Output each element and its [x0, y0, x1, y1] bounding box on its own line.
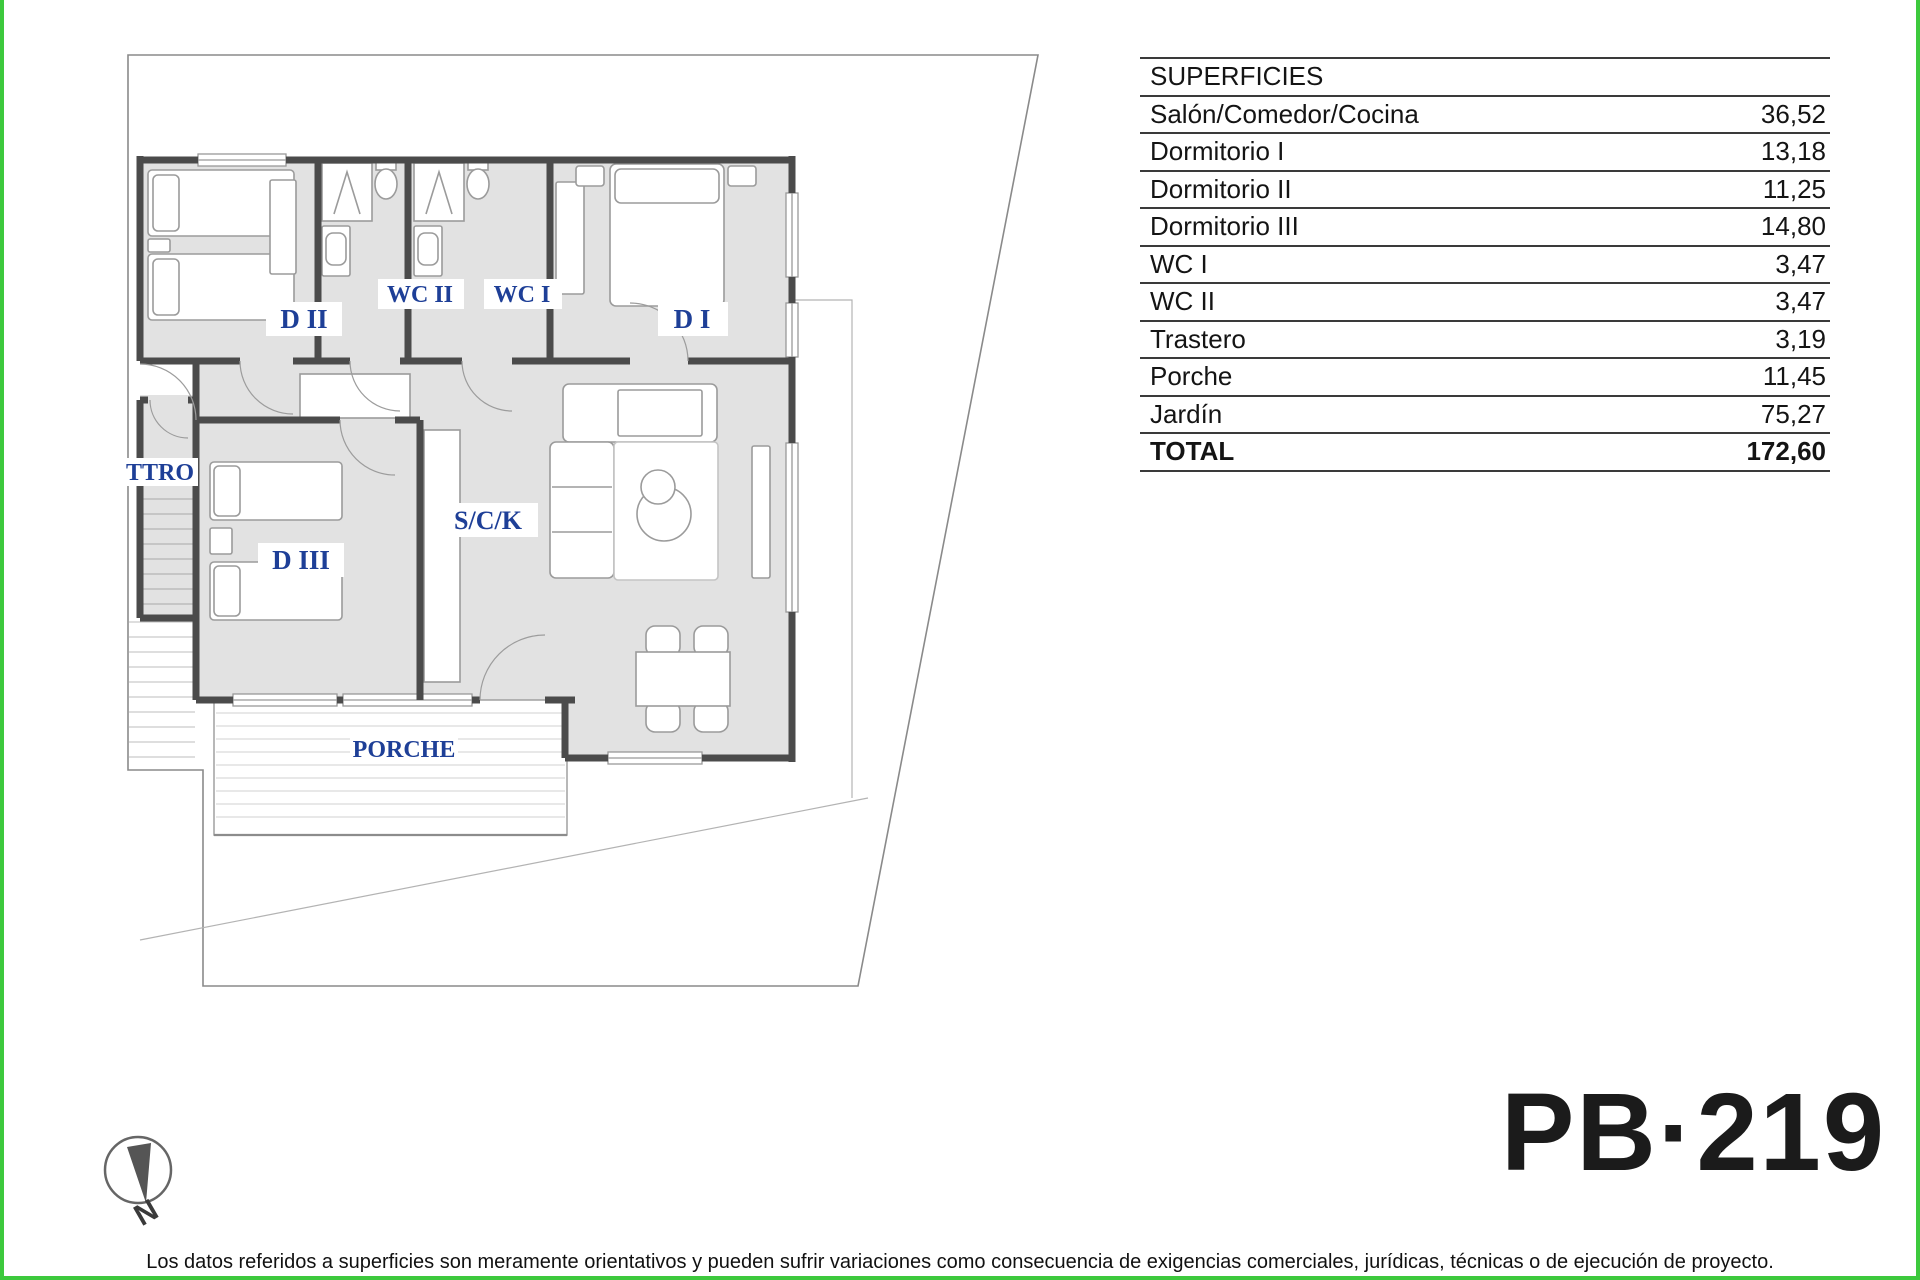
- armchair: [563, 384, 717, 442]
- surface-row: Jardín 75,27: [1140, 397, 1830, 435]
- surface-total-row: TOTAL 172,60: [1140, 434, 1830, 472]
- surface-value: 13,18: [1761, 136, 1826, 167]
- surface-value: 3,47: [1775, 249, 1826, 280]
- room-label-sck: S/C/K: [454, 506, 523, 535]
- surface-name: Jardín: [1150, 399, 1222, 430]
- north-compass: N: [105, 1137, 171, 1233]
- window: [608, 752, 702, 764]
- surface-name: Porche: [1150, 361, 1232, 392]
- toilet: [467, 160, 489, 199]
- surface-name: WC I: [1150, 249, 1208, 280]
- garden-boundary-line: [792, 300, 852, 798]
- room-label-ttro: TTRO: [126, 460, 194, 486]
- page: D II WC II WC I D I TTRO D III S/C/K POR…: [0, 0, 1920, 1280]
- surface-row: WC II 3,47: [1140, 284, 1830, 322]
- surface-name: Dormitorio II: [1150, 174, 1292, 205]
- surface-row: Porche 11,45: [1140, 359, 1830, 397]
- surface-value: 75,27: [1761, 399, 1826, 430]
- plan-code: PB·219: [1501, 1078, 1886, 1188]
- bed: [210, 462, 342, 520]
- surface-name: Dormitorio III: [1150, 211, 1299, 242]
- disclaimer-text: Los datos referidos a superficies son me…: [0, 1251, 1920, 1274]
- surface-total-value: 172,60: [1746, 436, 1826, 467]
- nightstand: [148, 239, 170, 252]
- nightstand: [210, 528, 232, 554]
- window: [786, 303, 798, 357]
- sink: [414, 226, 442, 276]
- surface-value: 11,25: [1763, 174, 1826, 205]
- surface-row: Dormitorio I 13,18: [1140, 134, 1830, 172]
- surface-row: Salón/Comedor/Cocina 36,52: [1140, 97, 1830, 135]
- room-label-d1: D I: [674, 304, 711, 334]
- compass-north-label: N: [129, 1193, 164, 1232]
- surface-row: Dormitorio II 11,25: [1140, 172, 1830, 210]
- surface-name: WC II: [1150, 286, 1215, 317]
- surface-value: 36,52: [1761, 99, 1826, 130]
- closet: [300, 374, 410, 418]
- surface-value: 11,45: [1763, 361, 1826, 392]
- window: [233, 694, 337, 706]
- window: [198, 154, 286, 166]
- dining-table: [636, 652, 730, 706]
- shower: [414, 163, 464, 221]
- bed: [610, 164, 724, 306]
- room-label-porche: PORCHE: [353, 737, 456, 763]
- toilet: [375, 160, 397, 199]
- surface-row: Dormitorio III 14,80: [1140, 209, 1830, 247]
- surface-row: WC I 3,47: [1140, 247, 1830, 285]
- kitchen-counter: [424, 430, 460, 682]
- sofa: [550, 442, 614, 578]
- porch-deck: [214, 700, 567, 835]
- surface-value: 14,80: [1761, 211, 1826, 242]
- window: [343, 694, 472, 706]
- surface-name: Dormitorio I: [1150, 136, 1284, 167]
- room-label-wc2: WC II: [387, 282, 453, 308]
- surface-value: 3,47: [1775, 286, 1826, 317]
- sideboard: [752, 446, 770, 578]
- surfaces-table: SUPERFICIES Salón/Comedor/Cocina 36,52 D…: [1140, 57, 1830, 472]
- wardrobe: [556, 182, 584, 294]
- surface-value: 3,19: [1775, 324, 1826, 355]
- window: [786, 443, 798, 612]
- surface-row: Trastero 3,19: [1140, 322, 1830, 360]
- nightstand: [576, 166, 604, 186]
- surface-name: Trastero: [1150, 324, 1246, 355]
- surface-name: Salón/Comedor/Cocina: [1150, 99, 1419, 130]
- nightstand: [728, 166, 756, 186]
- room-label-wc1: WC I: [494, 282, 551, 308]
- room-label-d2: D II: [280, 304, 327, 334]
- wardrobe: [270, 180, 296, 274]
- surfaces-header: SUPERFICIES: [1150, 61, 1323, 92]
- room-label-d3: D III: [272, 545, 330, 575]
- surface-total-name: TOTAL: [1150, 436, 1234, 467]
- surfaces-header-row: SUPERFICIES: [1140, 59, 1830, 97]
- window: [786, 193, 798, 277]
- sink: [322, 226, 350, 276]
- shower: [322, 163, 372, 221]
